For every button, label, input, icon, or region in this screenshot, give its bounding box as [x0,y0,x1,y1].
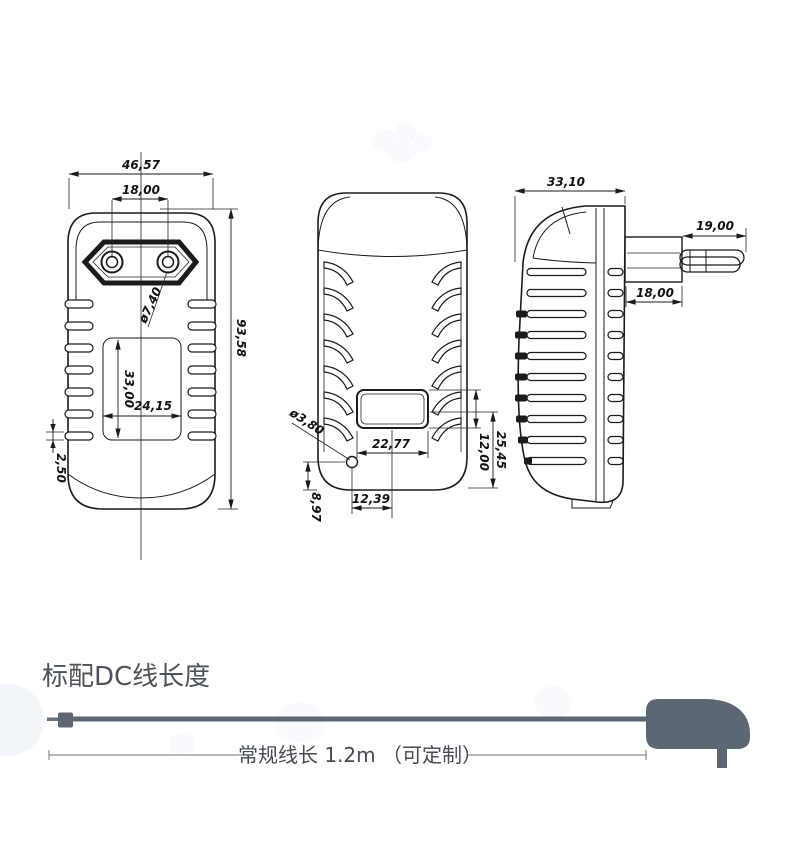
svg-text:18,00: 18,00 [122,183,160,197]
back-label-recess-outer [357,390,428,428]
back-view: ø3,80 22,77 12,39 8,97 12,00 [286,193,508,522]
front-view: 46,57 18,00 93,58 ø7,40 33,00 24,15 [46,152,248,560]
svg-text:93,58: 93,58 [234,319,248,357]
dc-connector [58,713,73,728]
dc-plug-tip [47,718,58,722]
svg-text:19,00: 19,00 [696,219,734,233]
dim-back-hole-offset: 12,39 [352,492,392,508]
svg-text:8,97: 8,97 [309,492,323,522]
svg-text:22,77: 22,77 [372,437,411,451]
svg-text:2,50: 2,50 [54,453,68,483]
cable-section: 标配DC线长度 常规线长 1.2m （可定制） [42,662,750,768]
drawing-canvas: 46,57 18,00 93,58 ø7,40 33,00 24,15 [0,0,790,862]
svg-text:33,10: 33,10 [547,175,585,189]
back-screw-hole [347,457,358,468]
adapter-dimension-sheet: 46,57 18,00 93,58 ø7,40 33,00 24,15 [0,0,790,862]
svg-text:24,15: 24,15 [134,399,172,413]
cable-length-note: 常规线长 1.2m （可定制） [238,743,482,767]
dim-front-vent-slot: 2,50 [46,419,68,483]
dim-side-plug-base-depth: 18,00 [626,286,682,307]
side-plug-base [625,237,682,282]
svg-text:12,00: 12,00 [477,433,491,471]
adapter-body-silhouette [646,699,750,749]
dc-cable [73,717,646,722]
adapter-pin-stub [717,749,727,768]
svg-text:25,45: 25,45 [494,431,508,469]
dim-front-pin-pitch: 18,00 [112,183,168,199]
side-view: 33,10 19,00 18,00 [515,175,746,508]
svg-text:46,57: 46,57 [121,158,161,172]
svg-text:18,00: 18,00 [636,286,674,300]
svg-text:12,39: 12,39 [352,492,390,506]
cable-length-dimension: 常规线长 1.2m （可定制） [49,743,646,767]
section-heading: 标配DC线长度 [42,662,210,692]
dim-side-pin-length: 19,00 [683,219,746,252]
